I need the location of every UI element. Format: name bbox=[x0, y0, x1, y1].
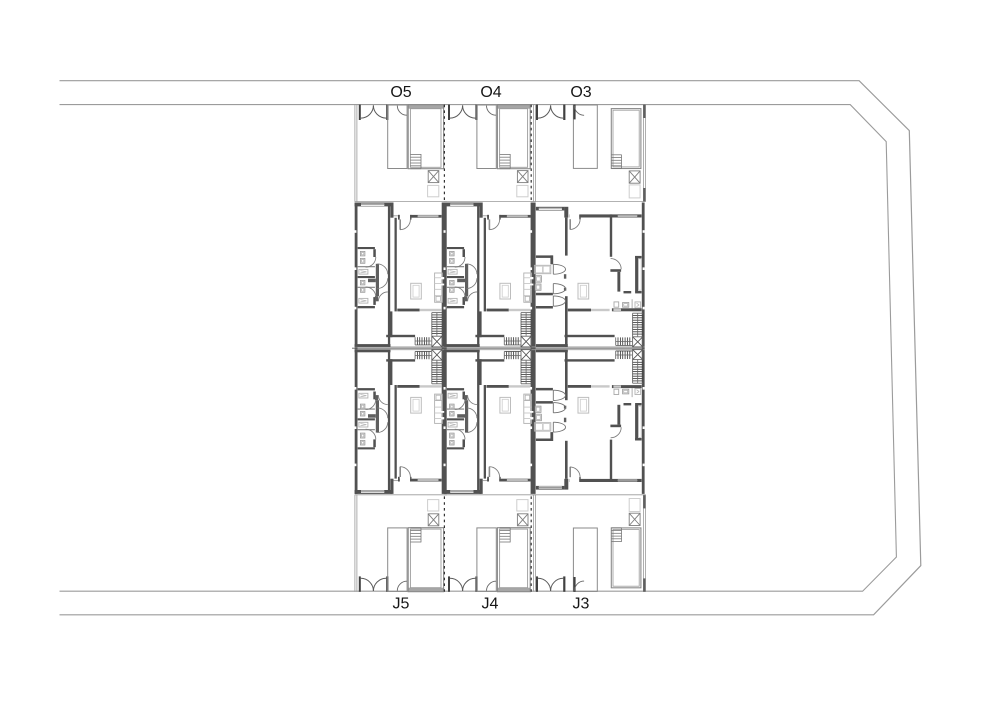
svg-text:O4: O4 bbox=[480, 84, 501, 101]
svg-text:O5: O5 bbox=[390, 84, 411, 101]
svg-text:J5: J5 bbox=[393, 596, 410, 613]
svg-text:J3: J3 bbox=[573, 596, 590, 613]
svg-text:O3: O3 bbox=[570, 84, 591, 101]
svg-text:J4: J4 bbox=[482, 596, 499, 613]
